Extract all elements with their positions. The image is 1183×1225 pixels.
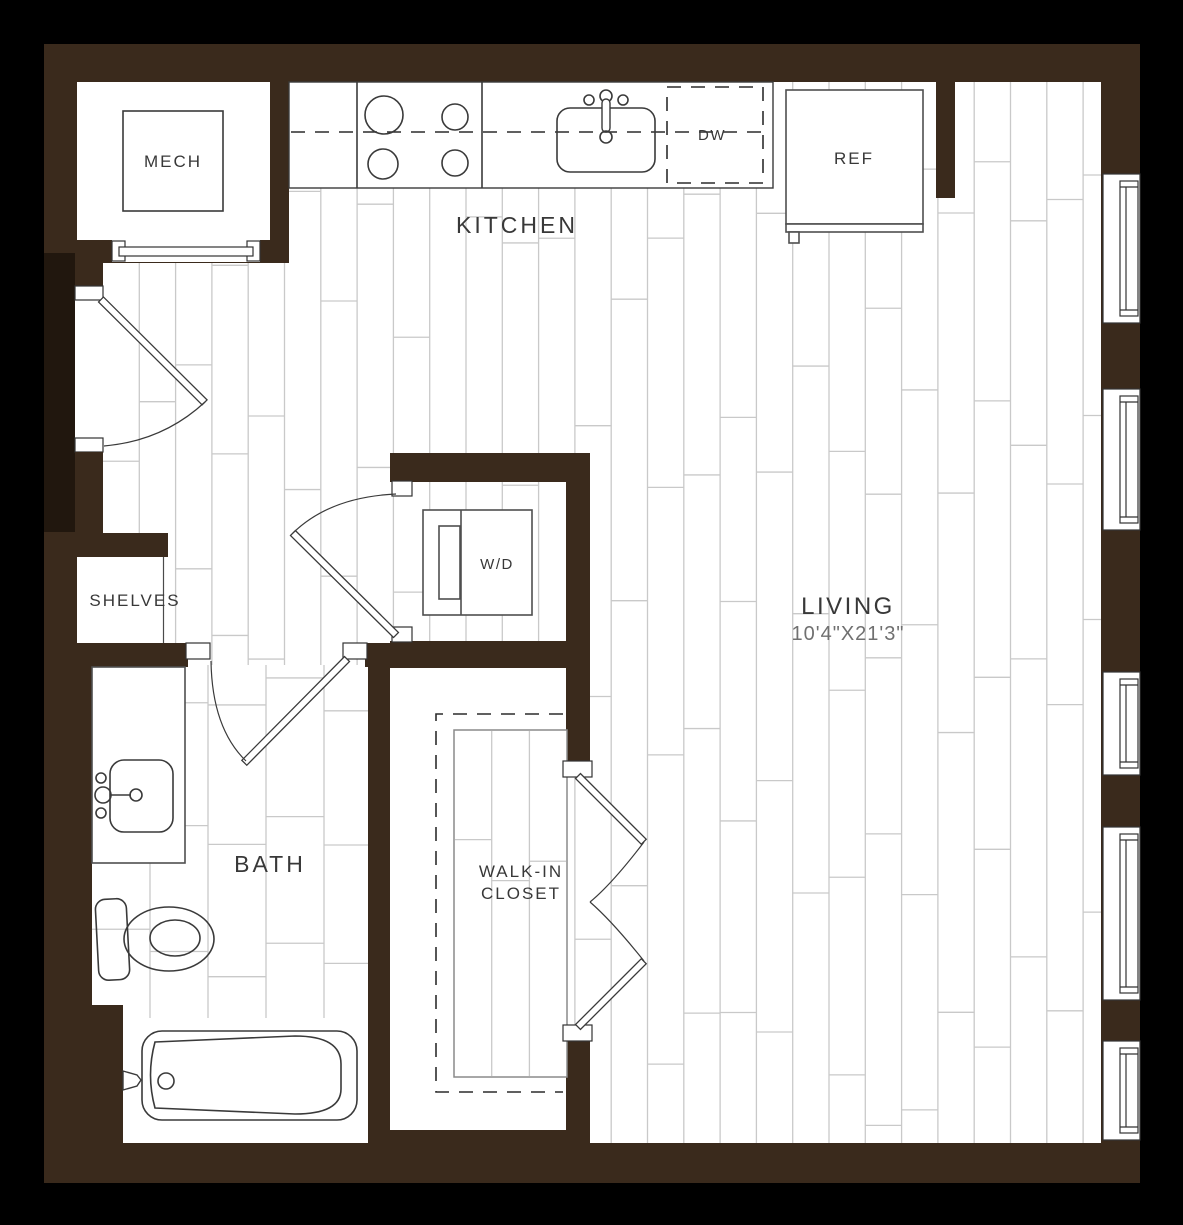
wd-bottom-wall [390,641,590,668]
entry-recess [44,253,75,532]
closet-right-wall-bottom [566,1041,590,1143]
bathtub-icon [123,1018,368,1143]
walk-in-closet-label-line2: CLOSET [481,884,561,903]
mech-room: MECH [77,82,289,263]
walk-in-closet-label-line1: WALK-IN [479,862,563,881]
mech-right-wall [270,82,289,263]
refrigerator-label: REF [834,149,874,168]
column-wall [936,82,955,198]
window-4-icon [1103,827,1140,1000]
wd-right-wall [566,453,590,645]
mech-label: MECH [144,152,202,171]
window-5-icon [1103,1041,1140,1140]
window-3-icon [1103,672,1140,775]
bathroom: BATH [75,643,390,1145]
living-dimensions-label: 10'4"X21'3" [792,623,905,645]
wd-top-wall [390,453,590,482]
bathroom-vanity [92,667,185,863]
dishwasher-label: DW [698,127,726,144]
kitchen-counter: DW [289,82,773,188]
closet-right-wall-top [566,643,590,761]
washer-dryer-label: W/D [480,556,514,573]
window-2-icon [1103,389,1140,530]
closet-bottom-wall [368,1130,590,1183]
bath-top-wall-left [75,643,188,667]
window-1-icon [1103,174,1140,323]
entry-side-wall [75,452,103,534]
mech-sliding-door [119,247,253,256]
bath-right-wall [368,643,390,1143]
living-label: LIVING [801,593,895,620]
shelves-top-wall [75,533,168,557]
kitchen-label: KITCHEN [456,212,578,238]
refrigerator: REF [786,90,923,243]
closet-shelving [454,730,567,1077]
floorplan-page: MECH DW REF [0,0,1183,1225]
shelves-label: SHELVES [89,591,180,610]
floorplan-drawing: MECH DW REF [0,0,1183,1225]
washer-dryer-unit: W/D [423,510,532,615]
bath-label: BATH [234,851,306,877]
bath-bottom-left-wall [75,1005,123,1145]
